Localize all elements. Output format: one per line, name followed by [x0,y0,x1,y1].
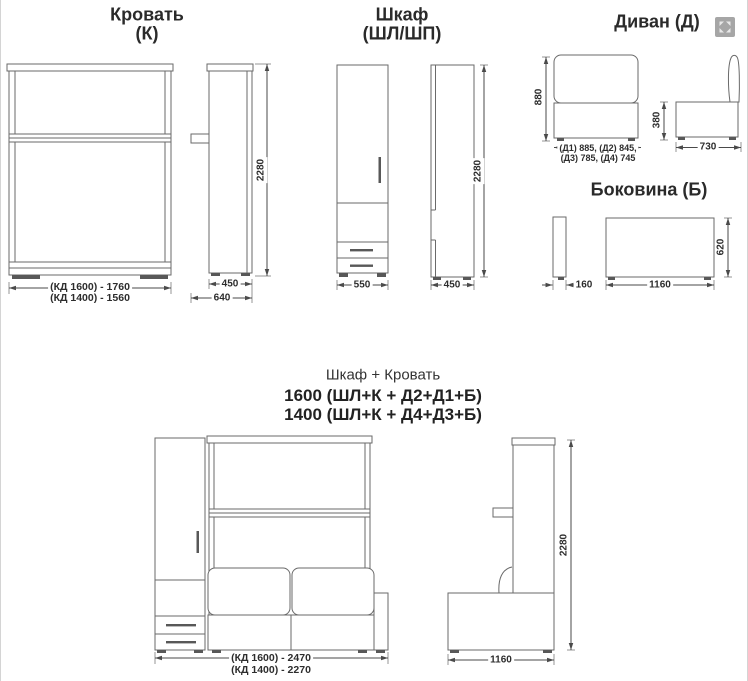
bed-side-view [191,64,253,276]
sofa-front-view [554,55,638,141]
combo-side-view [448,438,555,653]
side-panel-width: 1160 [647,279,673,291]
bed-subtitle: (К) [134,24,161,45]
schematic-drawing [1,0,748,681]
bed-side-bracket [191,134,209,143]
combo-front-width-1600: (КД 1600) - 2470 [229,652,313,664]
bed-front-foot [140,275,168,279]
sofa-front-widths-2: (Д3) 785, (Д4) 745 [559,153,638,163]
combo-side-height: 2280 [558,532,570,558]
wardrobe-side-height: 2280 [472,158,484,184]
combo-side-panel-body [513,445,554,593]
wardrobe-subtitle: (ШЛ/ШП) [361,24,444,45]
side-panel-edge-view [553,217,566,280]
sofa-side-depth: 730 [698,141,719,153]
wardrobe-title: Шкаф [374,5,431,26]
sofa-backrest [554,55,638,103]
bed-side-width: 450 [220,278,241,290]
side-panel-title: Боковина (Б) [589,180,710,201]
wardrobe-door-handle [379,157,382,183]
combo-side-sofa-curve [499,567,512,593]
expand-icon[interactable] [715,17,735,37]
wardrobe-side-view [431,65,474,280]
sofa-side-height: 380 [651,110,663,131]
combo-heading: Шкаф + Кровать [324,366,442,383]
sofa-title: Диван (Д) [612,12,701,33]
combo-wardrobe-handle [197,531,200,553]
side-panel-height: 620 [715,237,727,258]
bed-side-depth: 640 [212,292,233,304]
wardrobe-front-width: 550 [352,279,373,291]
wardrobe-drawer-handle [350,265,373,267]
bed-title: Кровать [108,5,186,26]
combo-front-width-1400: (КД 1400) - 2270 [229,663,313,675]
combo-front-view [155,436,388,653]
combo-bed-top [207,436,372,443]
bed-side-height: 2280 [255,157,267,183]
combo-variant-1600: 1600 (ШЛ+К + Д2+Д1+Б) [282,386,484,406]
wardrobe-drawer-handle [350,249,373,251]
sofa-front-widths-1: (Д1) 885, (Д2) 845, [557,142,638,152]
combo-side-width: 1160 [488,654,514,666]
combo-side-panel [374,593,388,650]
wardrobe-front-view [337,65,388,277]
sofa-side-backrest [728,55,739,102]
furniture-schematic-page: Кровать (К) Шкаф (ШЛ/ШП) Диван (Д) Боков… [0,0,748,681]
bed-front-foot [12,275,40,279]
combo-variant-1400: 1400 (ШЛ+К + Д4+Д3+Б) [282,405,484,425]
side-panel-front-view [606,218,714,280]
bed-front-width-1400: (КД 1400) - 1560 [48,292,132,304]
sofa-seat [554,103,638,138]
combo-side-seat [448,593,554,650]
sofa-front-height: 880 [533,87,545,108]
expand-arrows-glyph [715,17,735,37]
combo-sofa-cushion [208,568,290,615]
combo-sofa-cushion [292,568,374,615]
wardrobe-side-width: 450 [442,279,463,291]
combo-side-bracket [493,508,513,517]
sofa-side-view [676,55,739,140]
side-panel-thickness: 160 [574,279,595,291]
combo-drawer-handle [166,641,196,643]
bed-front-view [7,64,173,279]
combo-drawer-handle [166,624,196,626]
